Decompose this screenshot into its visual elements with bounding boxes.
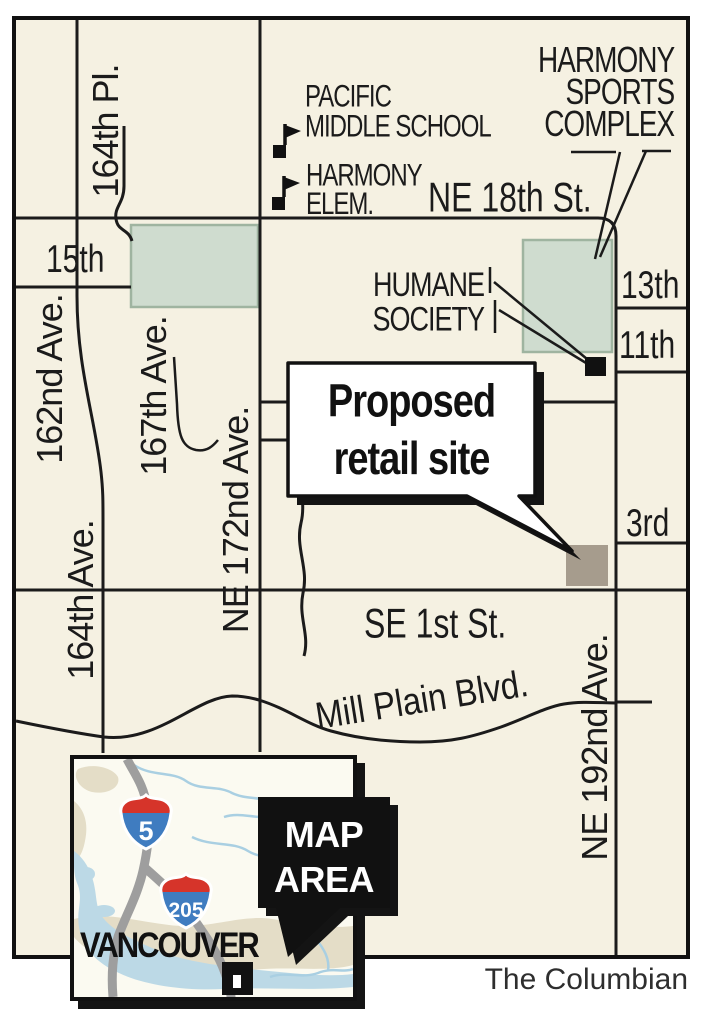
street-label-ne-18th: NE 18th St. <box>428 174 592 211</box>
inset-location-marker-dot <box>233 975 241 988</box>
proposed-retail-site-callout: Proposed retail site <box>288 374 535 489</box>
source-credit: The Columbian <box>402 963 688 997</box>
inset-stream-1 <box>134 765 269 801</box>
street-label-162nd-ave: 162nd Ave. <box>30 288 70 470</box>
i5-shield-icon: 5 <box>118 792 174 850</box>
inset-lake-1 <box>77 867 95 881</box>
street-label-164th-ave: 164th Ave. <box>61 508 101 692</box>
poi-pacific-middle-school: PACIFICMIDDLE SCHOOL <box>305 82 491 131</box>
street-label-13th: 13th <box>621 264 679 298</box>
inset-city-label: VANCOUVER <box>80 925 258 961</box>
svg-text:5: 5 <box>138 816 153 846</box>
inset-lake-2 <box>93 905 115 917</box>
street-label-se-1st: SE 1st St. <box>364 600 506 637</box>
inset-land-1 <box>76 766 119 792</box>
map-area-label: MAP AREA <box>258 812 390 902</box>
street-label-172nd-ave: NE 172nd Ave. <box>216 385 256 655</box>
map-graphic: 164th Pl. 15th 162nd Ave. 167th Ave. NE … <box>0 0 702 1024</box>
street-label-15th: 15th <box>46 238 104 272</box>
street-label-167th-ave: 167th Ave. <box>134 312 174 480</box>
street-label-11th: 11th <box>619 324 675 358</box>
street-label-164th-pl: 164th Pl. <box>86 55 126 207</box>
poi-harmony-sports-complex: HARMONYSPORTSCOMPLEX <box>538 44 672 123</box>
poi-harmony-elem: HARMONYELEM. <box>306 162 422 209</box>
i205-shield-icon: 205 <box>158 871 214 929</box>
poi-humane-society: HUMANESOCIETY <box>362 268 484 324</box>
street-label-3rd: 3rd <box>626 502 669 536</box>
inset-land-2 <box>74 801 86 861</box>
svg-text:205: 205 <box>168 899 203 922</box>
street-label-192nd-ave: NE 192nd Ave. <box>575 618 615 877</box>
